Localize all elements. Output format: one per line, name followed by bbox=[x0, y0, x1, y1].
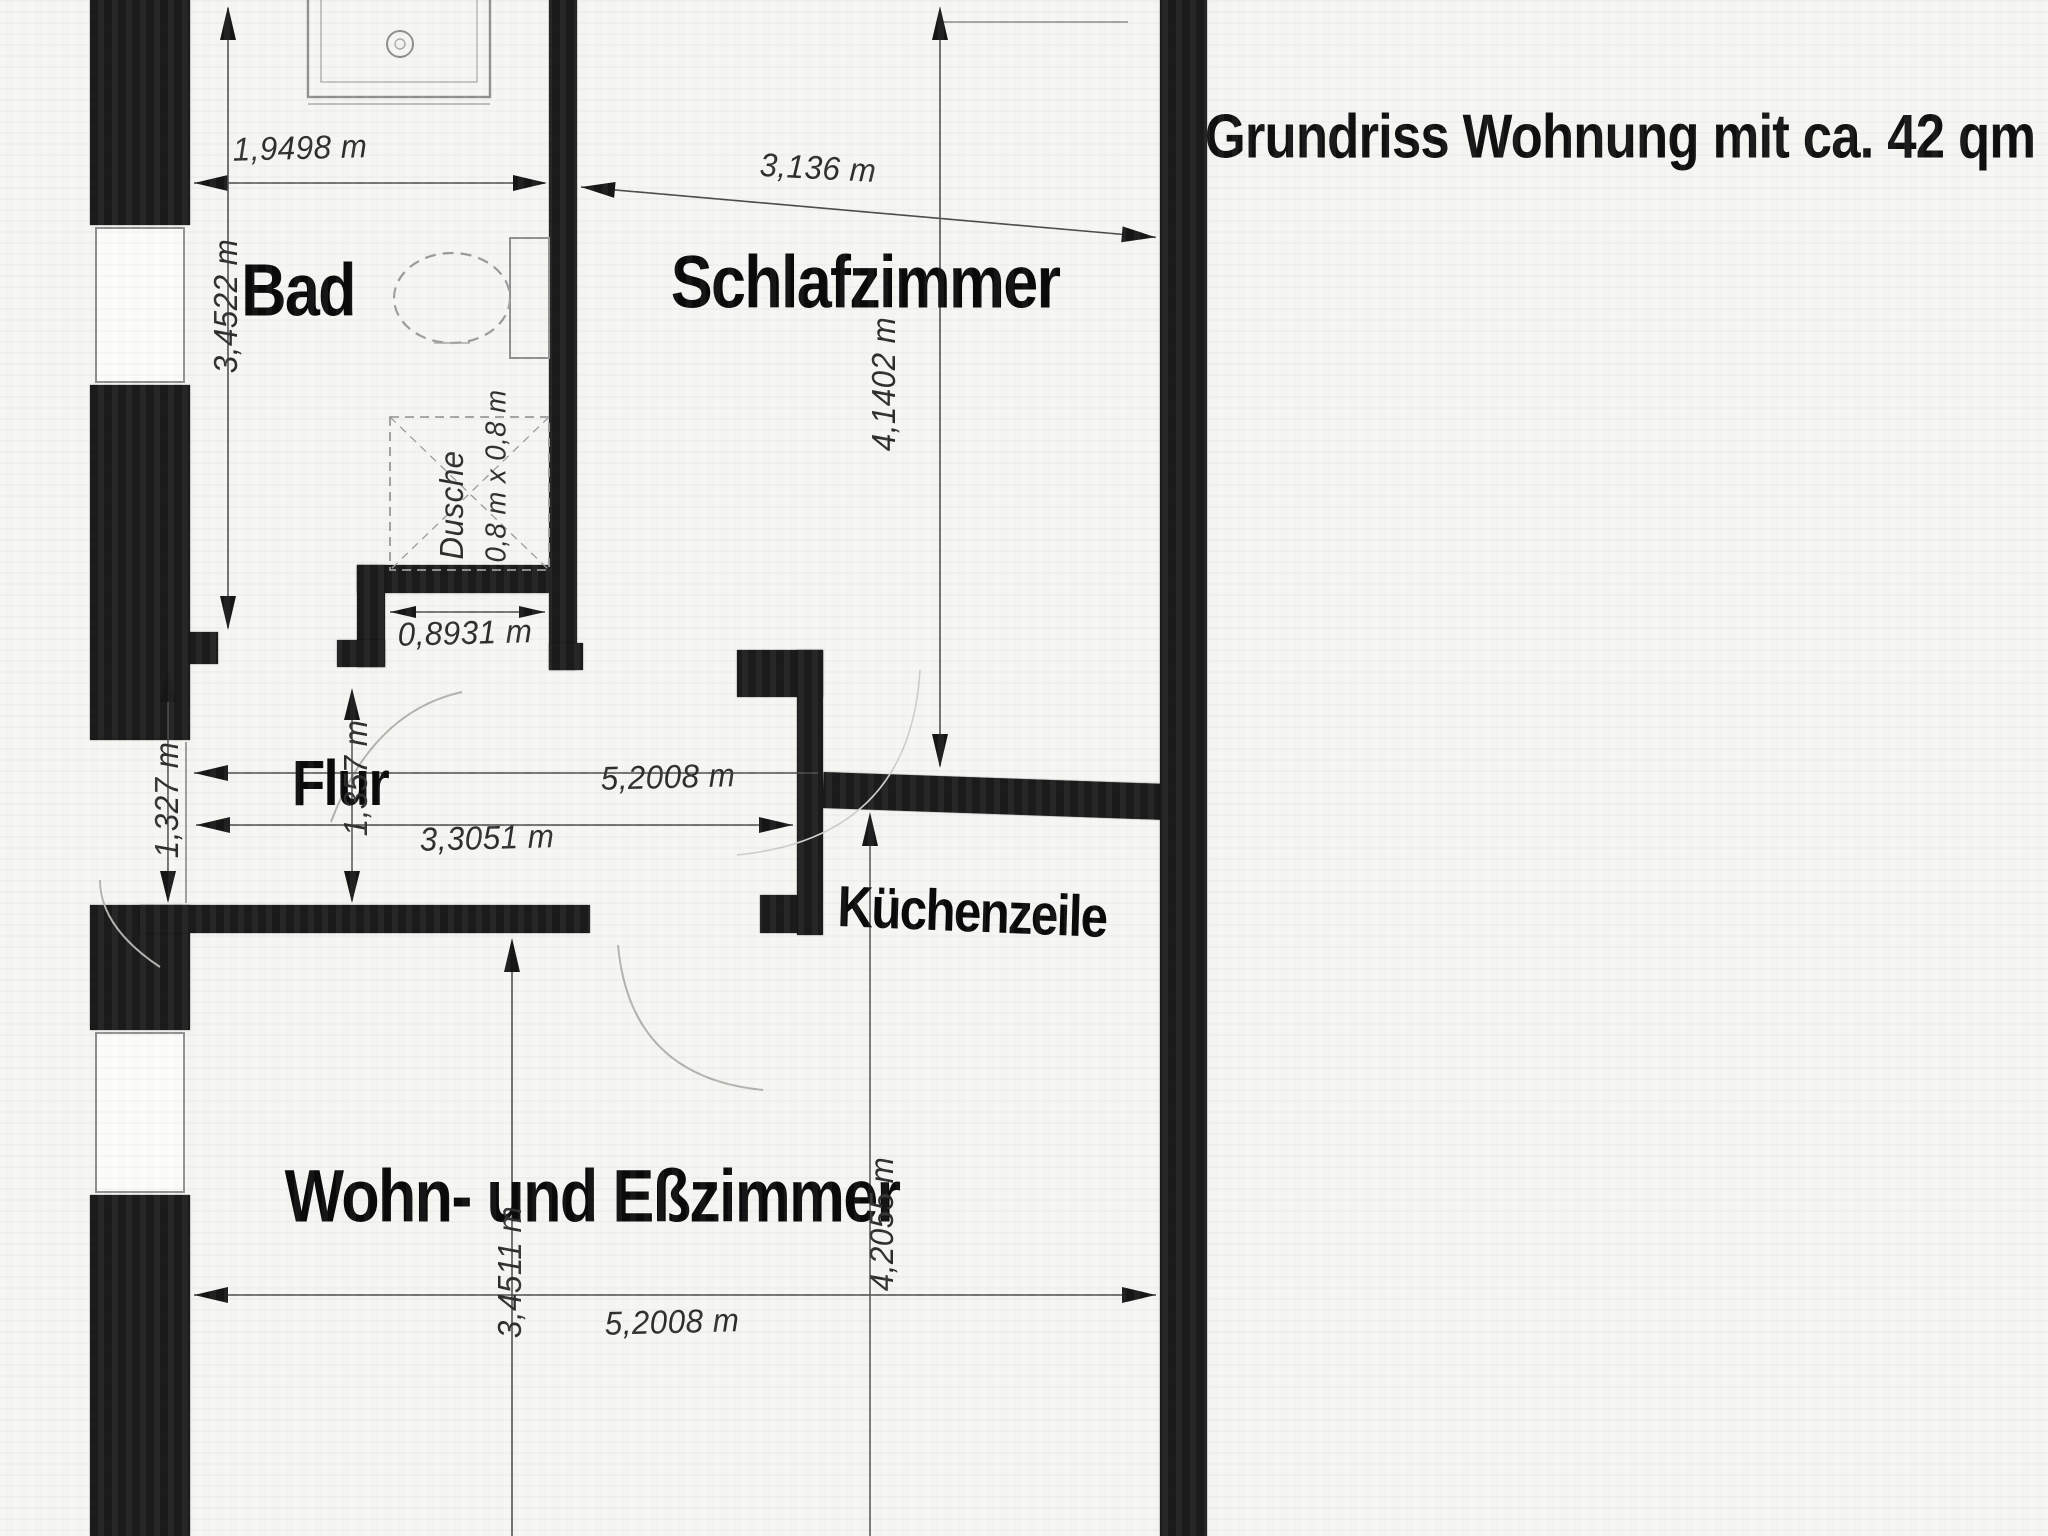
dim-label-bedroom-width: 3,136 m bbox=[759, 146, 877, 190]
dim-label-living-height-right: 4,2055 m bbox=[863, 1157, 901, 1292]
room-label-bathroom: Bad bbox=[241, 248, 355, 333]
dim-label-hall-height-mid: 1,357 m bbox=[337, 720, 375, 837]
window-living bbox=[96, 1033, 184, 1192]
dim-label-bedroom-height: 4,1402 m bbox=[865, 317, 903, 452]
dimension-line-living-width bbox=[194, 1287, 1156, 1303]
dim-label-hall-width-full: 5,2008 m bbox=[600, 756, 735, 798]
dim-label-hall-height-left: 1,327 m bbox=[148, 742, 186, 859]
dim-label-bath-width: 1,9498 m bbox=[232, 127, 367, 169]
room-label-kitchenette: Küchenzeile bbox=[837, 873, 1108, 951]
room-label-bedroom: Schlafzimmer bbox=[671, 240, 1060, 325]
window-bathroom bbox=[96, 228, 184, 382]
toilet-fixture bbox=[394, 238, 549, 358]
shower-size-label: 0,8 m x 0,8 m bbox=[481, 389, 514, 562]
dim-label-hall-width-partial: 3,3051 m bbox=[419, 817, 554, 859]
door-arc-entrance bbox=[100, 880, 160, 967]
plan-title: Grundriss Wohnung mit ca. 42 qm bbox=[1205, 102, 2036, 173]
dim-label-living-width: 5,2008 m bbox=[604, 1301, 739, 1343]
dim-label-living-height-left: 3,4511 m bbox=[491, 1206, 529, 1338]
shower-label: Dusche bbox=[433, 450, 471, 559]
dimension-line-bedroom-height bbox=[932, 6, 1128, 768]
floor-plan-page: Grundriss Wohnung mit ca. 42 qm Bad Schl… bbox=[0, 0, 2048, 1536]
sink-fixture bbox=[308, 0, 490, 104]
door-arc-living bbox=[618, 945, 763, 1090]
dim-label-passage-width: 0,8931 m bbox=[397, 612, 532, 654]
room-label-living-dining: Wohn- und Eßzimmer bbox=[285, 1154, 900, 1239]
dimension-line-bath-width bbox=[194, 175, 547, 191]
dim-label-bath-height: 3,4522 m bbox=[207, 239, 245, 374]
